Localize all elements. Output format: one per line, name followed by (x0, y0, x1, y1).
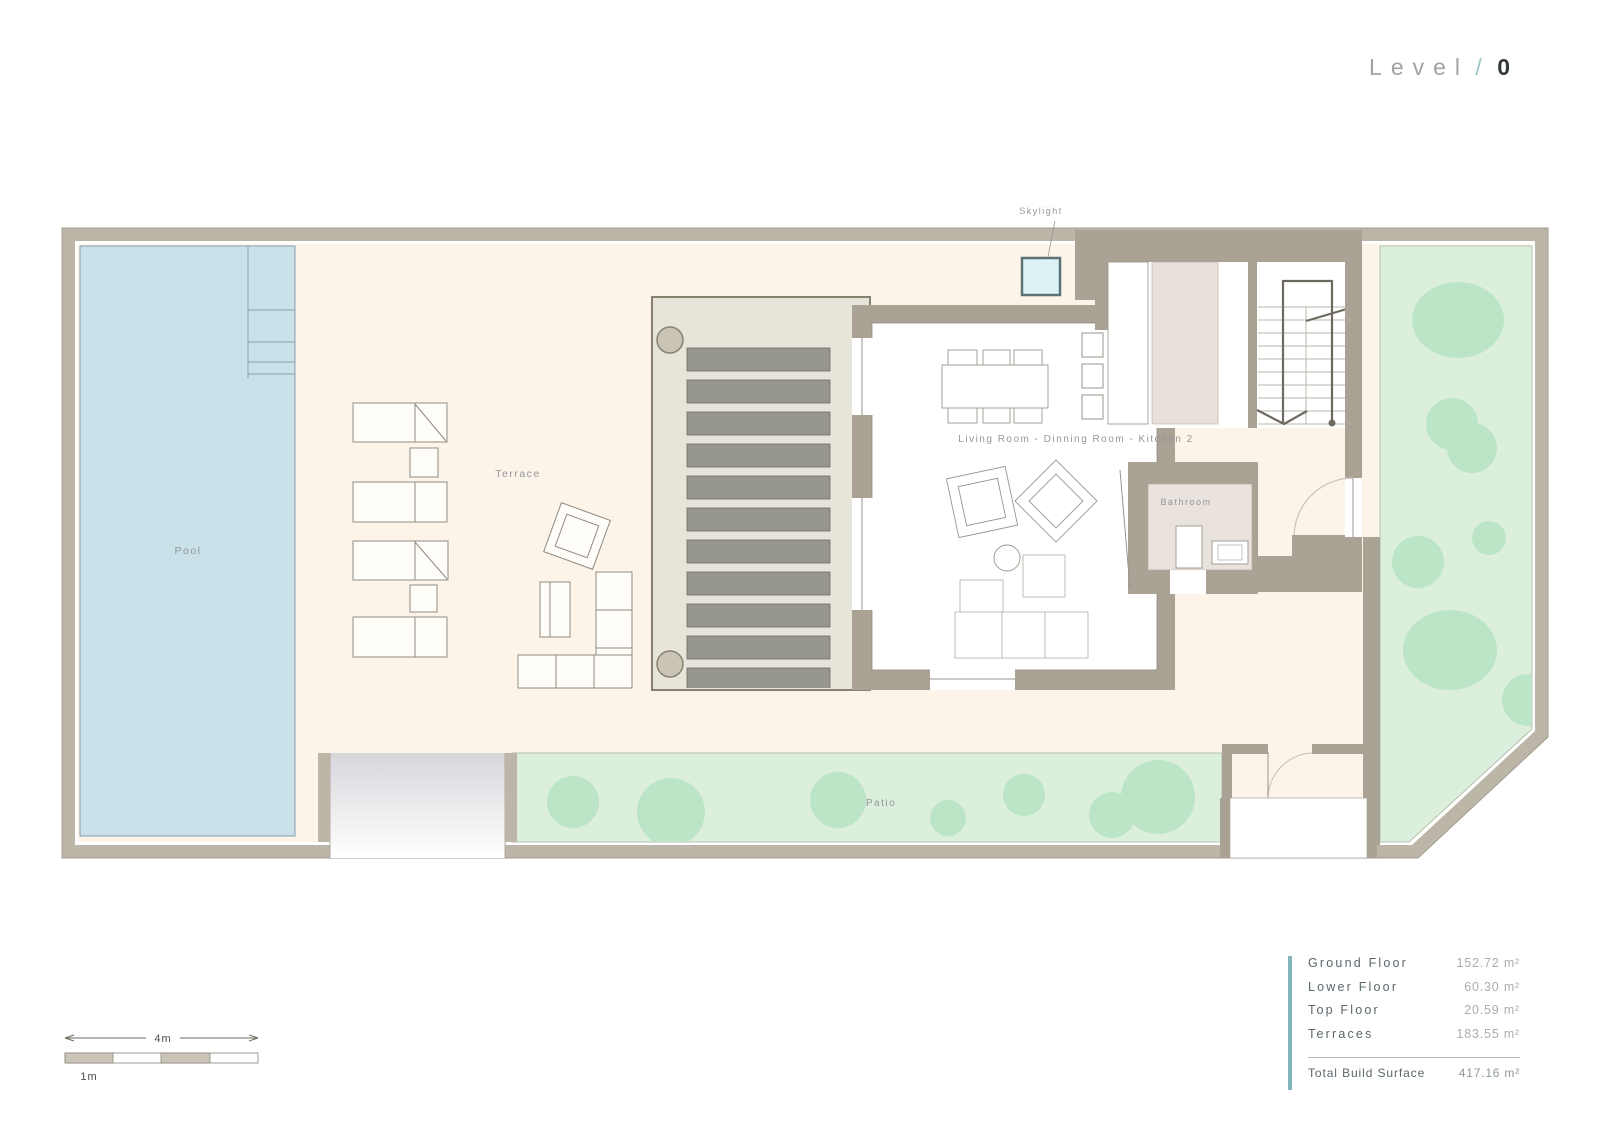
pergola-slats (687, 348, 830, 691)
sofa (955, 612, 1088, 658)
page-title: Level / 0 (1369, 54, 1512, 81)
outdoor-table (540, 582, 570, 637)
level-separator: / (1475, 54, 1490, 80)
living-room-label: Living Room - Dinning Room - Kitchen 2 (958, 434, 1193, 445)
row-label: Lower Floor (1308, 980, 1398, 994)
scale-unit-label: 1m (80, 1071, 97, 1083)
table-row: Terraces 183.55 m² (1308, 1027, 1520, 1051)
pool-label: Pool (174, 545, 201, 557)
patio: Patio (512, 753, 1222, 846)
pergola-column (657, 327, 683, 353)
coffee-table (994, 545, 1020, 571)
total-label: Total Build Surface (1308, 1066, 1425, 1080)
table-divider (1308, 1057, 1520, 1058)
row-label: Ground Floor (1308, 956, 1408, 970)
bathroom: Bathroom (1120, 462, 1258, 594)
bathroom-label: Bathroom (1160, 497, 1211, 507)
side-table (410, 585, 437, 612)
table-row: Ground Floor 152.72 m² (1308, 956, 1520, 980)
level-label: Level (1369, 54, 1469, 80)
row-value: 60.30 m² (1464, 980, 1520, 994)
scale-bar: 4m 1m (65, 1033, 258, 1083)
sun-lounger (353, 541, 448, 580)
dining-table (942, 365, 1048, 408)
sun-lounger (353, 482, 447, 522)
area-summary-table: Ground Floor 152.72 m² Lower Floor 60.30… (1288, 956, 1520, 1090)
side-table (410, 448, 438, 477)
sun-lounger (353, 403, 447, 442)
level-number: 0 (1497, 54, 1512, 80)
table-row: Top Floor 20.59 m² (1308, 1003, 1520, 1027)
sun-lounger (353, 617, 447, 657)
driveway (318, 753, 517, 858)
floor-plan-page: { "title": { "level_label": "Level", "se… (0, 0, 1600, 1130)
pergola-column (657, 651, 683, 677)
pool: Pool (80, 246, 295, 836)
armchair (946, 466, 1017, 537)
bar-stool (1082, 333, 1103, 357)
bar-stool (1082, 364, 1103, 388)
scale-total-label: 4m (154, 1033, 171, 1045)
pergola (652, 297, 870, 691)
terrace-label: Terrace (495, 468, 541, 480)
row-value: 152.72 m² (1457, 956, 1520, 970)
skylight-label: Skylight (1019, 206, 1063, 216)
row-value: 20.59 m² (1464, 1003, 1520, 1017)
total-value: 417.16 m² (1459, 1066, 1520, 1080)
dining-table-group (942, 350, 1048, 423)
kitchen (1082, 262, 1348, 428)
pouf (1023, 555, 1065, 597)
bar-stool (1082, 395, 1103, 419)
toilet (1176, 526, 1202, 568)
row-value: 183.55 m² (1457, 1027, 1520, 1041)
table-total-row: Total Build Surface 417.16 m² (1308, 1066, 1520, 1090)
table-row: Lower Floor 60.30 m² (1308, 980, 1520, 1004)
sink (1212, 541, 1248, 564)
row-label: Top Floor (1308, 1003, 1380, 1017)
patio-label: Patio (866, 798, 896, 809)
row-label: Terraces (1308, 1027, 1374, 1041)
